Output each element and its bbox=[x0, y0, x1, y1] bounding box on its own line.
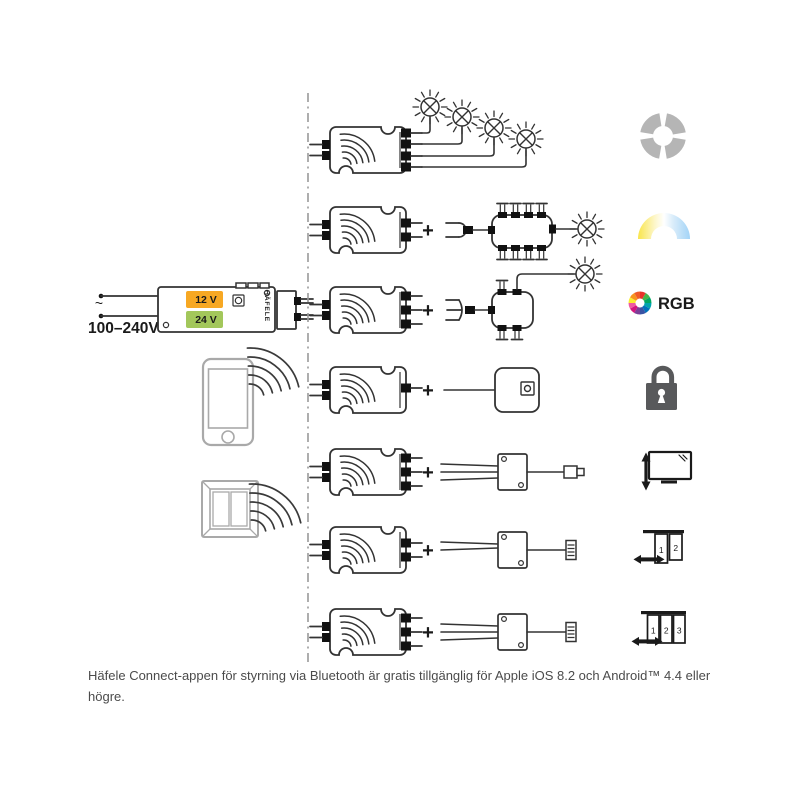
bluetooth-receiver bbox=[310, 609, 406, 655]
door-label: 3 bbox=[677, 626, 682, 636]
caption-line-2: högre. bbox=[88, 689, 748, 704]
bluetooth-receiver bbox=[310, 287, 406, 333]
door-label: 1 bbox=[651, 626, 656, 636]
row-3-rgb: + bbox=[310, 257, 602, 340]
plus-sign: + bbox=[422, 300, 434, 322]
badge-12v-label: 12 V bbox=[195, 294, 217, 306]
door-label: 1 bbox=[659, 545, 664, 555]
plug-connector bbox=[564, 466, 584, 478]
door-label: 2 bbox=[673, 543, 678, 553]
row-7-doors3: + bbox=[310, 609, 576, 655]
terminal-connector bbox=[566, 541, 576, 560]
lamp-icon bbox=[568, 257, 602, 291]
plus-sign: + bbox=[422, 380, 434, 402]
badge-24v-label: 24 V bbox=[195, 314, 217, 326]
driver-box bbox=[498, 614, 527, 650]
bluetooth-receiver bbox=[310, 207, 406, 253]
mains-wires: ~ 100–240V bbox=[88, 294, 160, 337]
row-2-multiwhite: + bbox=[310, 204, 604, 260]
driver-box bbox=[498, 454, 527, 490]
bluetooth-receiver bbox=[310, 127, 406, 173]
power-supply-unit: ~ 100–240V 12 V 24 V HÄFELE bbox=[88, 283, 313, 337]
door-label: 2 bbox=[664, 626, 669, 636]
fork-connector bbox=[446, 223, 488, 237]
sliding-door-2-icon: 1 2 bbox=[634, 530, 685, 564]
rgb-label: RGB bbox=[658, 295, 695, 313]
lamp-icon bbox=[509, 122, 543, 156]
plus-sign: + bbox=[422, 220, 434, 242]
plus-sign: + bbox=[422, 622, 434, 644]
rgb-wheel-icon: RGB bbox=[632, 295, 695, 313]
dimming-quadrant-icon bbox=[647, 120, 680, 153]
distributor-rgb bbox=[488, 281, 533, 340]
ac-symbol: ~ bbox=[95, 295, 103, 311]
padlock-icon bbox=[646, 368, 677, 410]
tunable-white-icon bbox=[638, 213, 690, 239]
lamp-icon bbox=[445, 100, 479, 134]
row-5-tvlift: + bbox=[310, 449, 584, 495]
row-4-lock: + bbox=[310, 367, 539, 413]
sliding-door-3-icon: 1 2 3 bbox=[632, 611, 687, 646]
lamp-icon bbox=[477, 111, 511, 145]
distributor-6way bbox=[488, 204, 556, 260]
lamp-icon bbox=[570, 212, 604, 246]
plus-sign: + bbox=[422, 462, 434, 484]
smartphone bbox=[203, 359, 253, 445]
lamp-icon bbox=[413, 90, 447, 124]
row-1-lamps bbox=[310, 90, 543, 173]
fork-connector bbox=[446, 300, 488, 320]
brand-label: HÄFELE bbox=[263, 290, 271, 322]
bluetooth-receiver bbox=[310, 527, 406, 573]
bluetooth-receiver bbox=[310, 367, 406, 413]
mains-voltage-label: 100–240V bbox=[88, 320, 159, 337]
caption-line-1: Häfele Connect-appen för styrning via Bl… bbox=[88, 668, 748, 683]
bluetooth-receiver bbox=[310, 449, 406, 495]
diagram-page: ~ 100–240V 12 V 24 V HÄFELE bbox=[0, 0, 800, 800]
plus-sign: + bbox=[422, 540, 434, 562]
lock-box bbox=[495, 368, 539, 412]
phone-wireless-signal-icon bbox=[247, 348, 298, 395]
wall-switch bbox=[202, 481, 258, 537]
terminal-connector bbox=[566, 623, 576, 642]
row-6-doors2: + bbox=[310, 527, 576, 573]
driver-box bbox=[498, 532, 527, 568]
tv-lift-icon bbox=[642, 452, 692, 491]
